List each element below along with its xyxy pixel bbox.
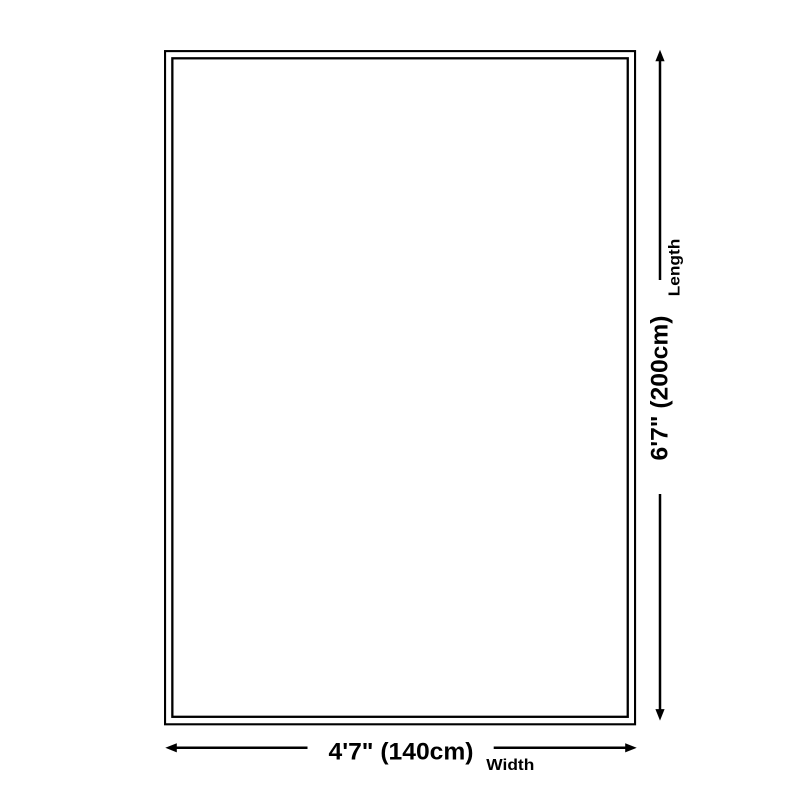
svg-text:Width: Width: [486, 757, 534, 774]
svg-text:6'7" (200cm): 6'7" (200cm): [647, 316, 674, 461]
svg-text:4'7" (140cm): 4'7" (140cm): [329, 739, 474, 766]
svg-text:Length: Length: [667, 239, 684, 297]
